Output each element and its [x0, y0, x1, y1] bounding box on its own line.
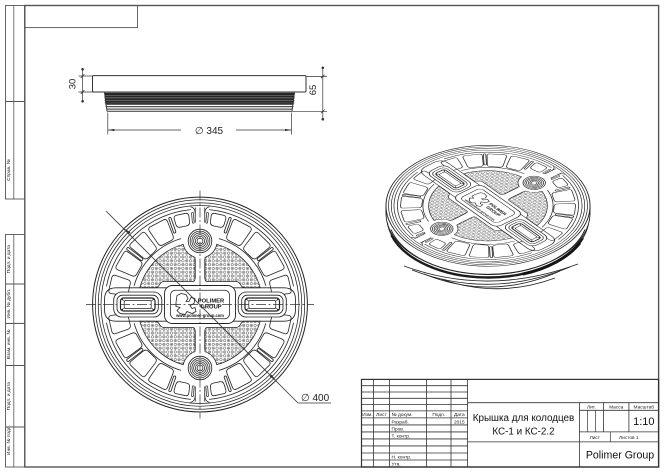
svg-text:Масса: Масса: [609, 405, 624, 411]
svg-text:Т. контр.: Т. контр.: [392, 433, 411, 439]
svg-text:Лит.: Лит.: [587, 405, 596, 411]
svg-text:Масштаб: Масштаб: [634, 405, 655, 411]
svg-text:Подп. и дата: Подп. и дата: [6, 245, 12, 274]
svg-text:Подп. и дата: Подп. и дата: [6, 382, 12, 411]
svg-text:КС-1 и КС-2.2: КС-1 и КС-2.2: [492, 427, 554, 438]
svg-text:Взам. инв. №: Взам. инв. №: [6, 330, 12, 360]
svg-text:Справ. №: Справ. №: [6, 159, 12, 181]
svg-text:65: 65: [308, 85, 319, 96]
svg-text:Изм.: Изм.: [362, 412, 372, 418]
svg-text:Polimer Group: Polimer Group: [586, 450, 654, 462]
svg-text:30: 30: [68, 79, 79, 90]
svg-text:Листов 1: Листов 1: [619, 435, 639, 441]
svg-text:Пров.: Пров.: [392, 426, 405, 432]
svg-text:Крышка для колодцев: Крышка для колодцев: [473, 413, 575, 424]
svg-text:∅ 400: ∅ 400: [301, 393, 330, 404]
svg-text:Лист: Лист: [376, 412, 387, 418]
svg-text:№ докум.: № докум.: [392, 412, 413, 418]
svg-text:Утв.: Утв.: [392, 461, 401, 467]
svg-text:Подп.: Подп.: [432, 412, 445, 418]
svg-text:2015: 2015: [454, 419, 465, 425]
svg-text:∅ 345: ∅ 345: [195, 126, 224, 137]
svg-text:Дата: Дата: [454, 412, 465, 418]
svg-text:Разраб.: Разраб.: [392, 419, 409, 425]
svg-text:1:10: 1:10: [633, 416, 654, 428]
svg-text:Инв. № дубл.: Инв. № дубл.: [6, 289, 12, 319]
svg-text:Н. контр.: Н. контр.: [392, 454, 412, 460]
svg-text:Лист: Лист: [590, 435, 601, 441]
svg-text:Инв. № подл.: Инв. № подл.: [6, 425, 12, 455]
